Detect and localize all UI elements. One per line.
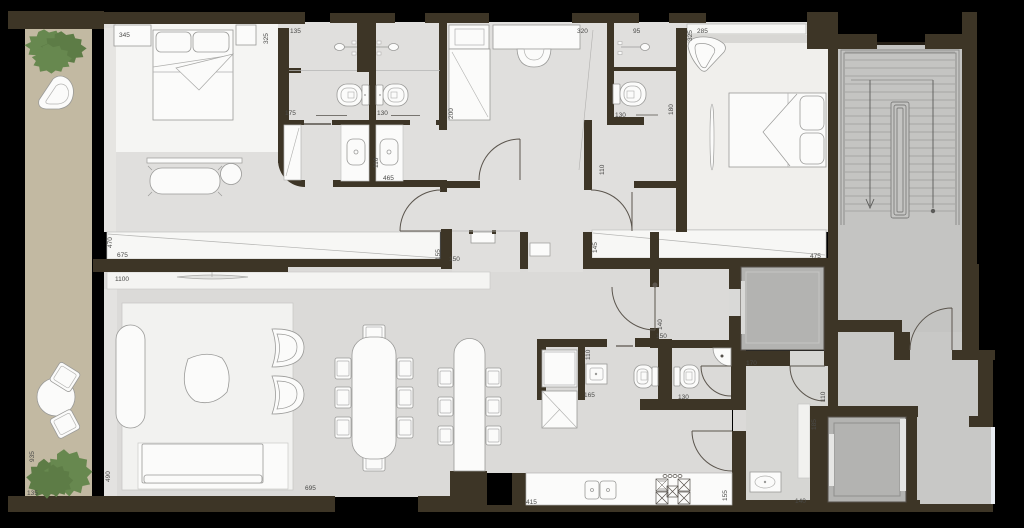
svg-text:1100: 1100 (115, 276, 129, 283)
svg-text:150: 150 (656, 333, 667, 340)
svg-text:285: 285 (697, 28, 708, 35)
svg-text:175: 175 (285, 110, 296, 117)
svg-text:140: 140 (657, 319, 664, 330)
svg-text:475: 475 (810, 253, 821, 260)
svg-text:130: 130 (615, 112, 626, 119)
svg-text:415: 415 (526, 499, 537, 506)
svg-text:110: 110 (585, 349, 592, 360)
svg-text:110: 110 (820, 391, 827, 402)
svg-text:130: 130 (377, 110, 388, 117)
svg-text:150: 150 (449, 256, 460, 263)
svg-text:325: 325 (263, 33, 270, 44)
svg-text:155: 155 (722, 490, 729, 501)
svg-text:465: 465 (383, 175, 394, 182)
svg-text:135: 135 (290, 28, 301, 35)
svg-text:110: 110 (599, 164, 606, 175)
svg-text:345: 345 (119, 32, 130, 39)
svg-text:170: 170 (746, 360, 757, 367)
svg-text:200: 200 (448, 108, 455, 119)
svg-text:155: 155 (435, 249, 442, 260)
svg-text:180: 180 (668, 104, 675, 115)
svg-text:320: 320 (577, 28, 588, 35)
svg-text:185: 185 (811, 419, 818, 430)
svg-text:135: 135 (27, 490, 38, 497)
svg-text:325: 325 (687, 30, 694, 41)
svg-text:140: 140 (795, 498, 806, 505)
svg-text:695: 695 (305, 485, 316, 492)
svg-text:935: 935 (29, 451, 36, 462)
svg-text:95: 95 (633, 28, 641, 35)
svg-text:110: 110 (373, 157, 380, 168)
svg-text:130: 130 (678, 394, 689, 401)
svg-text:490: 490 (105, 471, 112, 482)
svg-text:145: 145 (592, 242, 599, 253)
svg-text:675: 675 (117, 252, 128, 259)
svg-text:470: 470 (107, 237, 114, 248)
svg-text:165: 165 (584, 392, 595, 399)
